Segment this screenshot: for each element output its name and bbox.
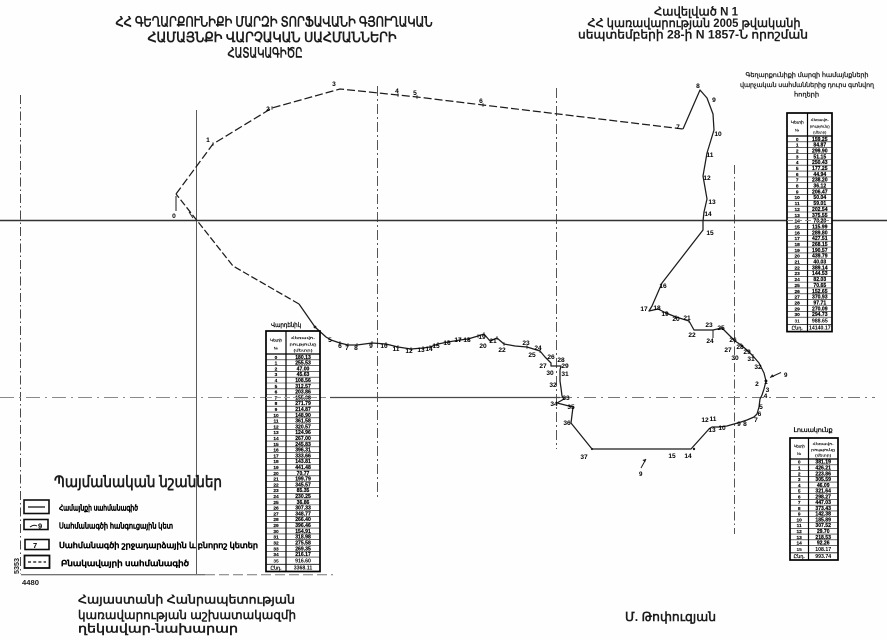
svg-text:19: 19 (795, 248, 801, 254)
svg-text:Ընդ.: Ընդ. (792, 325, 804, 331)
svg-text:11: 11 (795, 201, 800, 207)
svg-text:13: 13 (797, 535, 803, 541)
svg-text:21: 21 (683, 315, 691, 322)
svg-text:Հայաստանի Հանրապետության: Հայաստանի Հանրապետության (78, 593, 295, 607)
svg-text:9: 9 (639, 471, 643, 478)
svg-text:(մետր): (մետր) (294, 348, 314, 353)
svg-text:17: 17 (273, 453, 279, 459)
svg-text:30: 30 (546, 370, 554, 377)
svg-text:27: 27 (724, 347, 732, 354)
svg-text:32: 32 (273, 540, 279, 546)
svg-text:14: 14 (797, 541, 803, 547)
svg-text:26: 26 (547, 354, 555, 361)
svg-text:3: 3 (332, 81, 336, 88)
svg-text:11: 11 (710, 416, 717, 423)
svg-text:Գեղարքունիքի մարզի համայնքների: Գեղարքունիքի մարզի համայնքների (746, 71, 869, 79)
svg-text:7: 7 (798, 500, 801, 506)
svg-text:հողերի: հողերի (794, 91, 819, 99)
svg-text:5353: 5353 (12, 558, 21, 574)
svg-text:6: 6 (479, 98, 483, 105)
svg-text:12: 12 (703, 175, 711, 182)
svg-text:Ընդ.: Ընդ. (270, 565, 282, 571)
svg-text:5: 5 (759, 404, 763, 411)
svg-text:րությունը: րությունը (811, 447, 836, 452)
svg-text:5: 5 (796, 166, 799, 172)
svg-text:25: 25 (717, 325, 725, 332)
svg-text:15: 15 (797, 547, 803, 553)
svg-text:34: 34 (273, 552, 279, 558)
svg-text:15: 15 (432, 343, 440, 350)
svg-text:Պայմանական նշաններ: Պայմանական նշաններ (54, 474, 222, 491)
svg-text:23: 23 (705, 322, 713, 329)
svg-text:25: 25 (273, 500, 279, 506)
svg-text:5: 5 (413, 90, 417, 97)
svg-text:19: 19 (478, 334, 486, 341)
svg-text:սեպտեմբերի 28-ի N 1857-Ն որոշմ: սեպտեմբերի 28-ի N 1857-Ն որոշման (578, 28, 808, 42)
svg-text:12: 12 (797, 529, 803, 535)
svg-text:10: 10 (380, 343, 388, 350)
svg-text:4480: 4480 (22, 578, 39, 587)
svg-text:14: 14 (684, 453, 692, 460)
svg-text:13: 13 (273, 430, 279, 436)
svg-text:7: 7 (754, 417, 758, 424)
svg-text:0: 0 (172, 213, 176, 220)
svg-text:№: № (797, 452, 801, 456)
svg-text:10: 10 (273, 413, 279, 419)
svg-text:4: 4 (764, 393, 768, 400)
svg-text:27: 27 (795, 295, 801, 301)
svg-text:25: 25 (795, 283, 801, 289)
svg-text:20: 20 (795, 254, 801, 260)
svg-text:Կետի: Կետի (270, 337, 283, 342)
svg-text:31: 31 (747, 356, 755, 363)
svg-text:Հեռավո-: Հեռավո- (811, 117, 830, 122)
svg-text:9: 9 (712, 97, 716, 104)
svg-text:7: 7 (275, 395, 278, 401)
svg-text:28: 28 (795, 300, 801, 306)
svg-text:րությունը: րությունը (290, 341, 318, 346)
svg-text:12: 12 (795, 207, 801, 213)
svg-text:9: 9 (275, 407, 278, 413)
svg-text:ղեկավար-նախարար: ղեկավար-նախարար (78, 622, 238, 636)
svg-text:11: 11 (797, 523, 802, 529)
svg-text:18: 18 (463, 337, 471, 344)
svg-text:23: 23 (273, 488, 279, 494)
svg-text:29: 29 (561, 363, 569, 370)
svg-text:Ընդ.: Ընդ. (794, 554, 806, 560)
svg-text:15: 15 (706, 230, 714, 237)
svg-text:30: 30 (731, 355, 739, 362)
svg-text:№: № (795, 128, 799, 132)
svg-text:18: 18 (795, 242, 801, 248)
svg-text:Սահմանագծի շրջադարձային և բնոր: Սահմանագծի շրջադարձային և բնորոշ կետեր (59, 540, 258, 550)
svg-text:Մ. Թոփուզյան: Մ. Թոփուզյան (625, 610, 716, 624)
svg-text:24: 24 (795, 277, 801, 283)
svg-text:Կետի: Կետի (791, 119, 805, 124)
svg-text:9: 9 (796, 189, 799, 195)
svg-text:13: 13 (708, 427, 716, 434)
svg-text:2: 2 (755, 381, 759, 388)
svg-text:Բնակավայրի սահմանագիծ: Բնակավայրի սահմանագիծ (61, 558, 189, 568)
svg-text:30: 30 (273, 529, 279, 535)
svg-text:92.26: 92.26 (817, 541, 830, 547)
svg-text:6: 6 (338, 343, 342, 350)
svg-text:993.74: 993.74 (815, 554, 831, 560)
svg-text:№: № (274, 346, 278, 350)
svg-text:15: 15 (273, 442, 279, 448)
svg-text:22: 22 (688, 332, 696, 339)
svg-text:31: 31 (273, 535, 279, 541)
svg-text:3: 3 (275, 372, 278, 378)
svg-text:22: 22 (795, 265, 801, 271)
svg-text:7: 7 (33, 541, 37, 550)
svg-text:33: 33 (273, 546, 279, 552)
svg-text:19: 19 (273, 465, 279, 471)
svg-text:26: 26 (273, 506, 279, 512)
svg-text:29: 29 (273, 523, 279, 529)
svg-text:9: 9 (38, 522, 42, 531)
svg-text:5: 5 (798, 489, 801, 495)
svg-text:1: 1 (764, 379, 768, 386)
svg-text:22: 22 (498, 347, 506, 354)
svg-text:6: 6 (796, 172, 799, 178)
svg-text:20: 20 (672, 316, 680, 323)
svg-text:216.17: 216.17 (295, 552, 311, 558)
svg-text:27: 27 (273, 511, 279, 517)
svg-text:31: 31 (561, 371, 569, 378)
svg-text:15: 15 (668, 453, 676, 460)
svg-text:2: 2 (266, 106, 270, 113)
svg-text:24: 24 (273, 494, 279, 500)
svg-text:988.65: 988.65 (812, 319, 828, 325)
svg-text:14: 14 (704, 211, 712, 218)
svg-text:32: 32 (754, 364, 762, 371)
svg-text:4: 4 (275, 378, 278, 384)
svg-text:2: 2 (798, 471, 801, 477)
svg-text:2: 2 (796, 148, 799, 154)
svg-text:21: 21 (273, 477, 279, 483)
svg-text:ՀԱՏԱԿԱԳԻԾԸ: ՀԱՏԱԿԱԳԻԾԸ (228, 46, 303, 61)
svg-text:8: 8 (743, 421, 747, 428)
svg-text:Սահմանագծի հանգուցային կետ: Սահմանագծի հանգուցային կետ (59, 521, 173, 532)
svg-text:5: 5 (275, 384, 278, 390)
svg-text:5: 5 (328, 337, 332, 344)
svg-text:28: 28 (273, 517, 279, 523)
svg-text:23: 23 (522, 340, 530, 347)
svg-text:17: 17 (795, 236, 801, 242)
svg-text:8: 8 (796, 184, 799, 190)
svg-text:21: 21 (795, 260, 801, 266)
svg-text:25: 25 (528, 352, 536, 359)
svg-text:7: 7 (345, 345, 349, 352)
svg-text:0: 0 (798, 460, 801, 466)
svg-text:33: 33 (562, 395, 570, 402)
svg-text:9: 9 (737, 421, 741, 428)
svg-text:8: 8 (798, 506, 801, 512)
svg-text:0: 0 (796, 137, 799, 143)
svg-text:37: 37 (580, 454, 588, 461)
svg-text:14: 14 (273, 436, 279, 442)
svg-text:18: 18 (653, 305, 661, 312)
svg-text:7: 7 (796, 178, 799, 184)
svg-text:13: 13 (417, 347, 425, 354)
svg-text:4: 4 (395, 88, 399, 95)
svg-text:8: 8 (354, 345, 358, 352)
svg-text:11: 11 (393, 346, 400, 353)
svg-text:9: 9 (369, 343, 373, 350)
svg-text:6: 6 (275, 390, 278, 396)
svg-text:11: 11 (273, 419, 278, 425)
svg-text:1: 1 (206, 137, 210, 144)
svg-text:15: 15 (795, 224, 801, 230)
svg-text:31: 31 (795, 319, 801, 325)
svg-text:24: 24 (534, 345, 542, 352)
svg-text:19: 19 (661, 311, 669, 318)
svg-text:18: 18 (273, 459, 279, 465)
svg-text:13: 13 (708, 199, 716, 206)
svg-text:29: 29 (743, 349, 751, 356)
svg-text:22: 22 (273, 482, 279, 488)
svg-text:2: 2 (275, 366, 278, 372)
svg-text:12: 12 (405, 348, 413, 355)
svg-text:(մետր): (մետր) (813, 130, 827, 135)
svg-text:108.17: 108.17 (815, 547, 831, 553)
svg-text:294.73: 294.73 (812, 312, 828, 318)
svg-text:0: 0 (275, 355, 278, 361)
svg-text:1: 1 (275, 361, 278, 367)
svg-text:րությունը: րությունը (810, 123, 831, 128)
svg-text:4: 4 (798, 483, 801, 489)
svg-text:12: 12 (273, 424, 279, 430)
svg-text:23: 23 (795, 271, 801, 277)
svg-text:ՀՀ ԳԵՂԱՐՔՈՒՆԻՔԻ ՄԱՐԶԻ ՏՈՐՖԱՎԱՆ: ՀՀ ԳԵՂԱՐՔՈՒՆԻՔԻ ՄԱՐԶԻ ՏՈՐՖԱՎԱՆԻ ԳՅՈՒՂԱԿԱ… (116, 15, 433, 30)
svg-text:16: 16 (795, 230, 801, 236)
svg-text:Լուսակունք: Լուսակունք (794, 427, 833, 434)
svg-text:32: 32 (549, 382, 557, 389)
svg-text:3368.11: 3368.11 (294, 565, 313, 571)
svg-text:16: 16 (273, 448, 279, 454)
svg-text:21: 21 (489, 338, 497, 345)
svg-text:Հեռավո-: Հեռավո- (813, 441, 835, 446)
svg-text:29: 29 (795, 306, 801, 312)
svg-text:14140.17: 14140.17 (809, 325, 831, 331)
svg-text:10: 10 (714, 131, 722, 138)
svg-text:Հեռավո-: Հեռավո- (291, 335, 316, 340)
svg-text:3: 3 (798, 477, 801, 483)
svg-text:Վարդենիկ: Վարդենիկ (271, 322, 301, 329)
svg-text:6: 6 (798, 494, 801, 500)
svg-text:16: 16 (443, 340, 451, 347)
svg-text:1: 1 (798, 466, 801, 472)
svg-text:16: 16 (659, 283, 667, 290)
svg-text:26: 26 (795, 289, 801, 295)
svg-text:10: 10 (718, 425, 726, 432)
svg-text:26: 26 (729, 337, 737, 344)
svg-text:12: 12 (701, 417, 709, 424)
svg-text:9: 9 (798, 512, 801, 518)
svg-text:27: 27 (539, 363, 547, 370)
svg-text:6: 6 (758, 411, 762, 418)
svg-text:վարչական սահմաններից դուրս գտն: վարչական սահմաններից դուրս գտնվող (740, 81, 875, 89)
svg-text:4: 4 (796, 160, 799, 166)
svg-text:8: 8 (275, 401, 278, 407)
svg-text:10: 10 (795, 195, 801, 201)
svg-text:13: 13 (795, 213, 801, 219)
svg-text:ՀԱՄԱՅՆՔԻ ՎԱՐՉԱԿԱՆ ՍԱՀՄԱՆՆԵՐԻ: ՀԱՄԱՅՆՔԻ ՎԱՐՉԱԿԱՆ ՍԱՀՄԱՆՆԵՐԻ (148, 30, 397, 45)
svg-text:17: 17 (454, 337, 462, 344)
svg-text:(մետր): (մետր) (815, 453, 832, 458)
svg-text:կառավարության աշխատակազմի: կառավարության աշխատակազմի (78, 608, 296, 622)
svg-text:9: 9 (784, 372, 788, 379)
svg-text:24: 24 (706, 338, 714, 345)
svg-text:916.60: 916.60 (295, 559, 311, 565)
svg-text:10: 10 (797, 517, 803, 523)
svg-text:20: 20 (273, 471, 279, 477)
svg-text:8: 8 (696, 83, 700, 90)
svg-text:14: 14 (795, 219, 801, 225)
svg-text:35: 35 (567, 404, 575, 411)
svg-text:34: 34 (550, 401, 558, 408)
svg-text:30: 30 (795, 312, 801, 318)
svg-text:1: 1 (796, 143, 799, 149)
svg-text:35: 35 (273, 559, 279, 565)
svg-text:Համայնքի սահմանագիծ: Համայնքի սահմանագիծ (59, 503, 138, 513)
svg-text:36: 36 (563, 420, 571, 427)
svg-text:7: 7 (676, 124, 680, 131)
svg-text:3: 3 (796, 154, 799, 160)
svg-text:11: 11 (707, 152, 714, 159)
svg-text:Կետի: Կետի (794, 443, 806, 448)
svg-text:20: 20 (479, 343, 487, 350)
svg-text:17: 17 (640, 306, 648, 313)
